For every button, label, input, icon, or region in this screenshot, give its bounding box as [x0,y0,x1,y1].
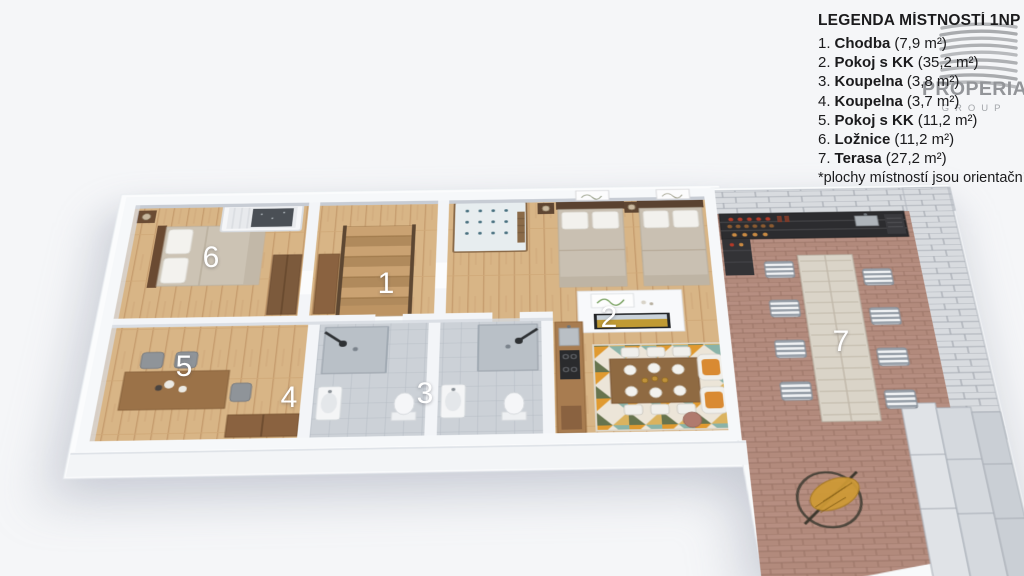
legend-footnote: *plochy místností jsou orientační [818,170,1022,186]
room-label-3: 3 [417,379,434,409]
room-label-4: 4 [281,383,298,413]
room-label-1: 1 [378,269,395,299]
legend-item: 3.Koupelna(3,8 m²) [818,72,1022,91]
legend-title: LEGENDA MÍSTNOSTÍ 1NP [818,12,1022,30]
room-label-5: 5 [176,352,193,382]
legend-item: 2.Pokoj s KK(35,2 m²) [818,53,1022,72]
floorplan-scene: 1 2 3 4 5 6 7 PROPERIA GROUP LEGENDA MÍS… [0,0,1024,576]
legend-item: 6.Ložnice(11,2 m²) [818,130,1022,149]
legend-item: 5.Pokoj s KK(11,2 m²) [818,111,1022,130]
room-label-2: 2 [601,303,618,333]
room-legend: LEGENDA MÍSTNOSTÍ 1NP 1.Chodba(7,9 m²) 2… [818,12,1022,186]
legend-item: 7.Terasa(27,2 m²) [818,149,1022,168]
room-label-7: 7 [833,327,850,357]
legend-item: 1.Chodba(7,9 m²) [818,34,1022,53]
legend-item: 4.Koupelna(3,7 m²) [818,92,1022,111]
room-label-6: 6 [203,243,220,273]
